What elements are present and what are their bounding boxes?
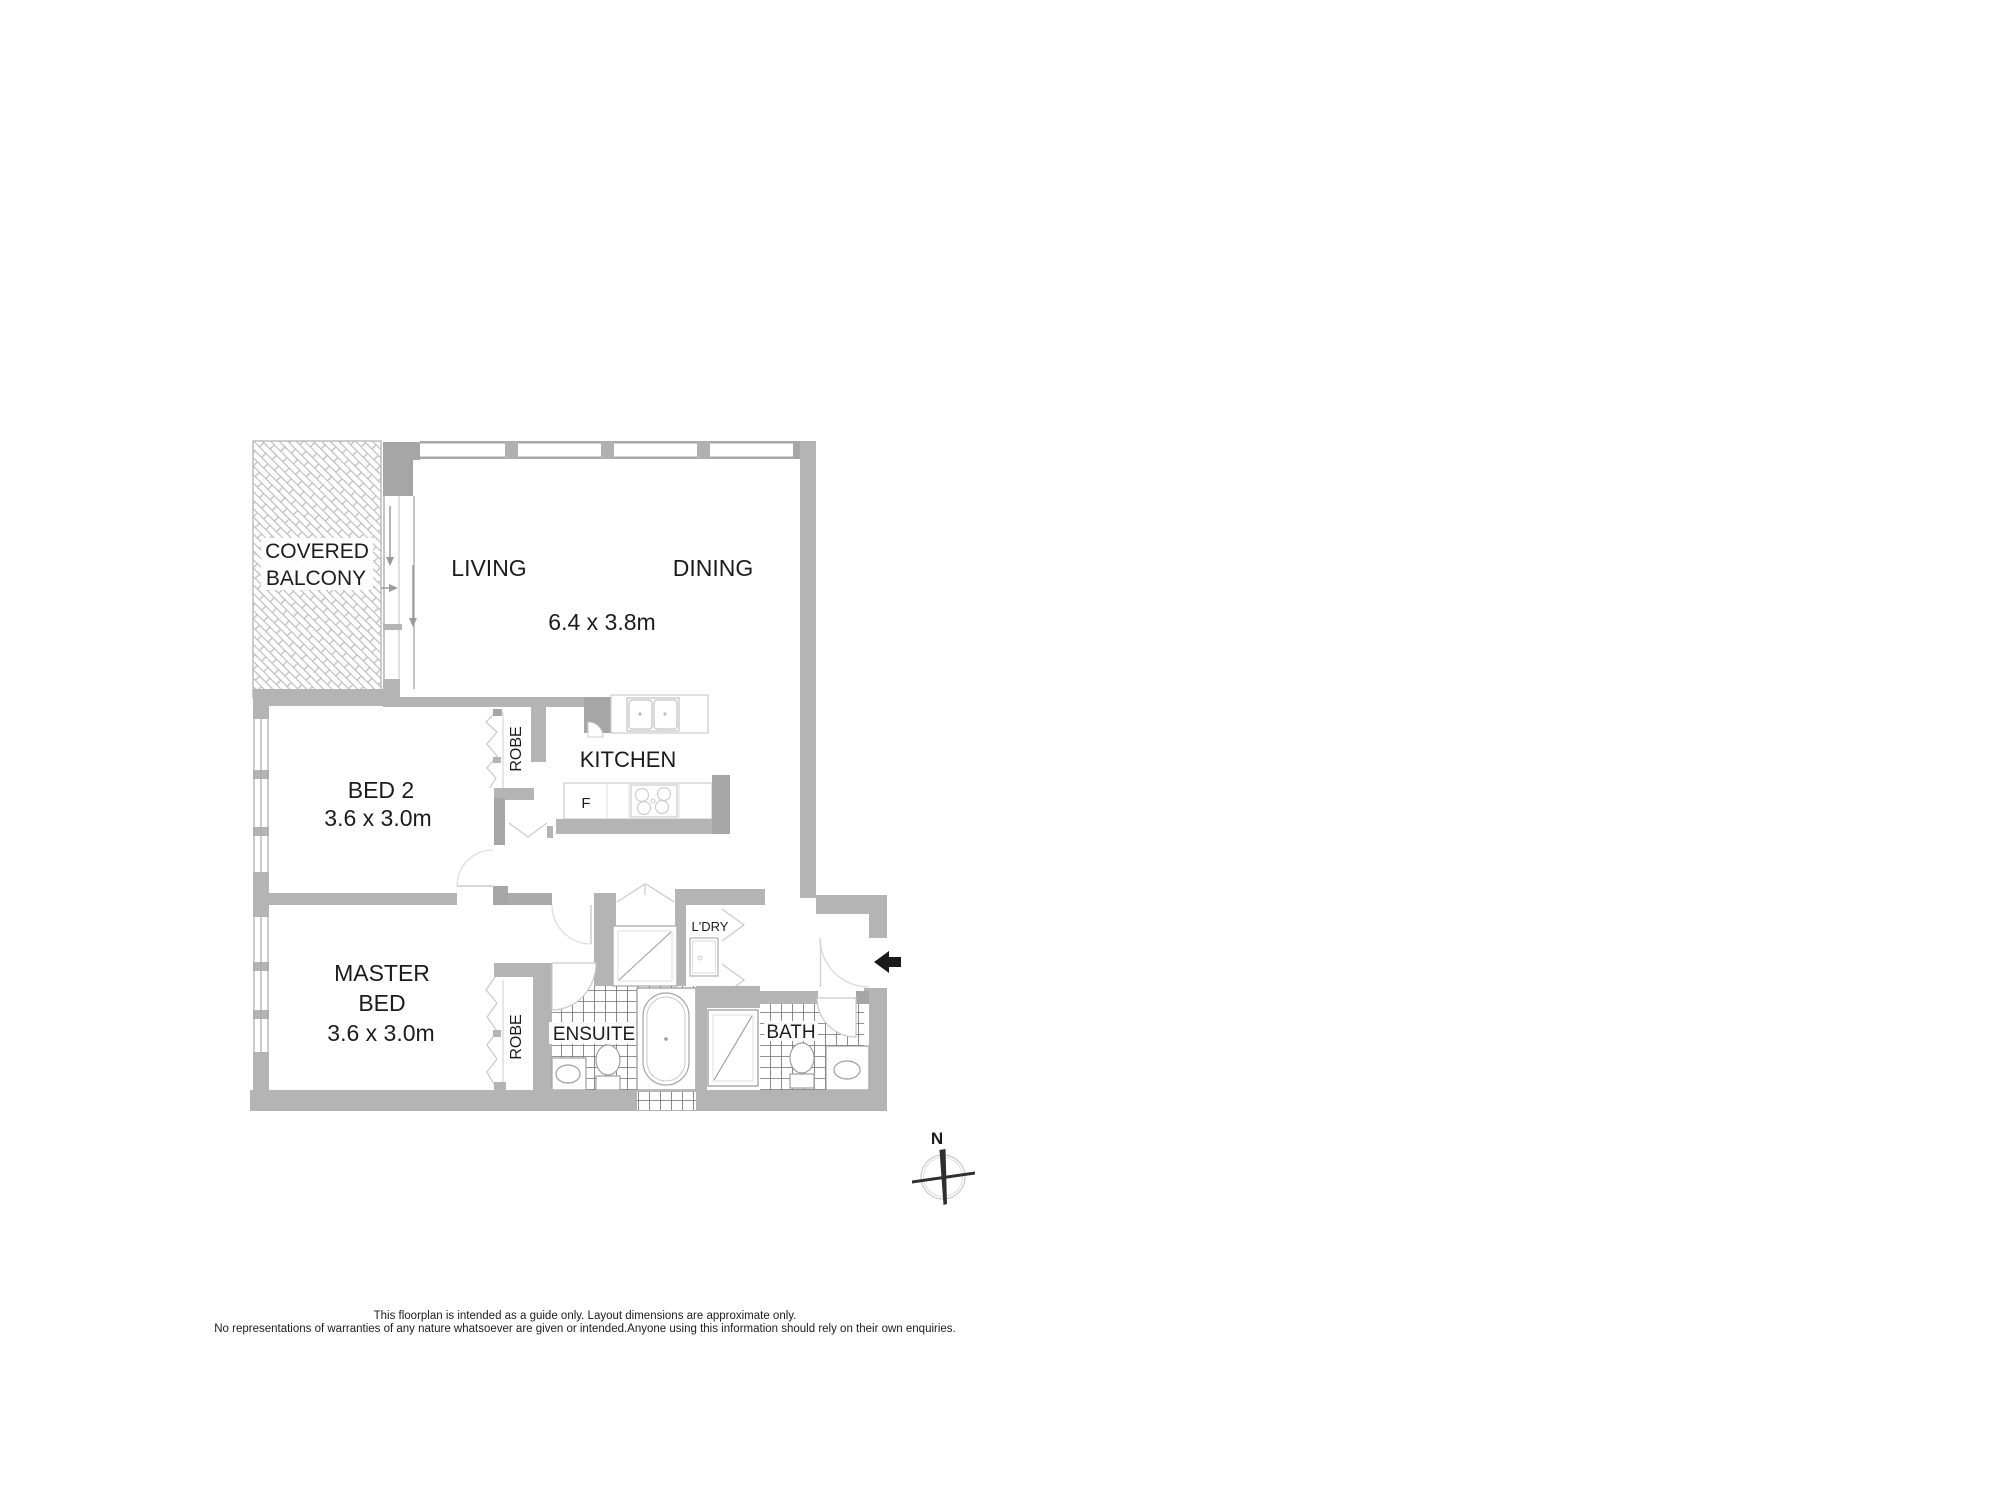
svg-text:F: F <box>581 795 590 812</box>
svg-text:6.4 x 3.8m: 6.4 x 3.8m <box>548 609 655 635</box>
svg-text:N: N <box>931 1129 943 1148</box>
svg-text:COVERED: COVERED <box>265 540 369 563</box>
svg-text:MASTER: MASTER <box>334 960 430 986</box>
svg-text:This floorplan is intended as: This floorplan is intended as a guide on… <box>374 1310 797 1322</box>
svg-text:ROBE: ROBE <box>508 1014 525 1059</box>
svg-text:KITCHEN: KITCHEN <box>580 747 677 772</box>
svg-text:ROBE: ROBE <box>508 726 525 771</box>
svg-text:BATH: BATH <box>766 1022 815 1043</box>
svg-text:LIVING: LIVING <box>451 555 526 581</box>
svg-text:3.6 x 3.0m: 3.6 x 3.0m <box>324 805 431 831</box>
svg-text:No representations of warranti: No representations of warranties of any … <box>214 1323 956 1335</box>
svg-text:BED 2: BED 2 <box>348 777 414 803</box>
svg-text:L'DRY: L'DRY <box>692 919 729 934</box>
svg-text:3.6 x 3.0m: 3.6 x 3.0m <box>327 1020 434 1046</box>
svg-text:DINING: DINING <box>673 555 754 581</box>
svg-text:BED: BED <box>358 990 405 1016</box>
svg-text:ENSUITE: ENSUITE <box>553 1024 635 1045</box>
svg-text:BALCONY: BALCONY <box>266 567 366 590</box>
